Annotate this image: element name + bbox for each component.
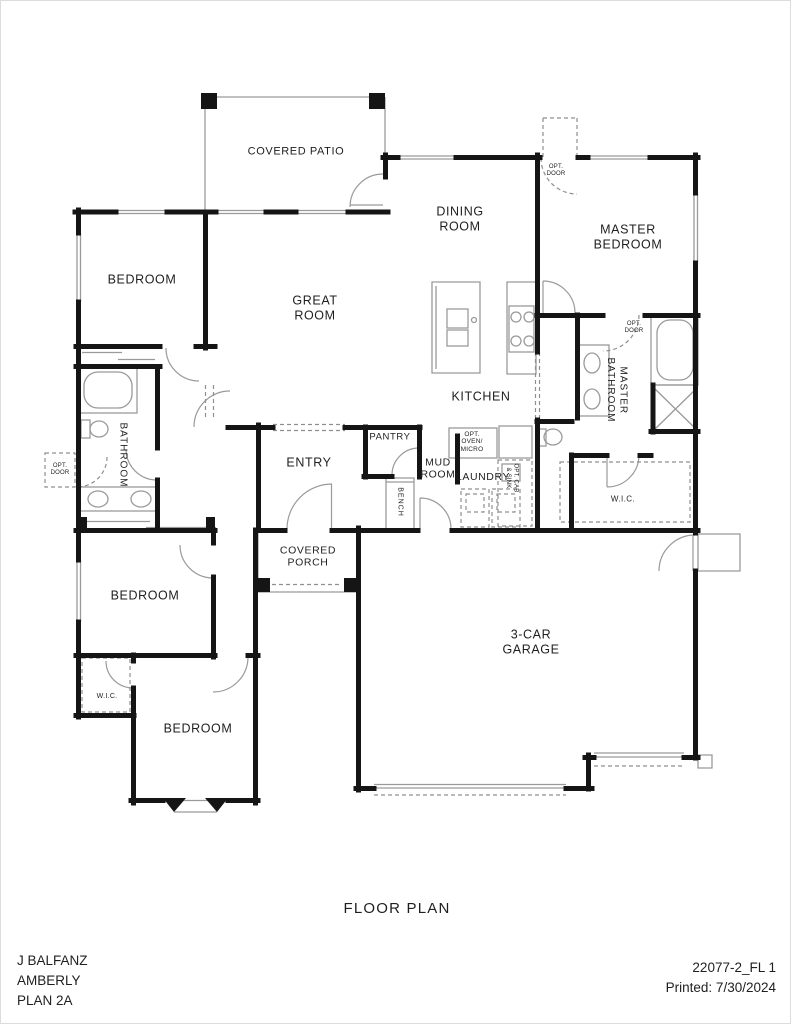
opt-door-bathroom-arc	[77, 457, 107, 487]
patio-door-arc	[350, 174, 383, 207]
patio-post-right	[369, 93, 385, 109]
closet-cap-right	[206, 517, 215, 530]
annotation-opt-door-bathroom: OPT. DOOR	[51, 463, 70, 477]
master-sink-1	[584, 353, 600, 373]
bath-toilet-tank	[81, 420, 90, 438]
titleblock-client: J BALFANZ	[17, 951, 88, 971]
room-label-entry: ENTRY	[286, 456, 331, 471]
bath-sink-1	[88, 491, 108, 507]
room-label-wic-master: W.I.C.	[611, 494, 635, 503]
great-room-hall-door-arc	[194, 391, 230, 427]
bath-vanity	[80, 487, 156, 511]
side-exterior-door-arc	[659, 535, 695, 571]
room-label-mud-room: MUD ROOM	[420, 457, 455, 482]
bedroom-middle-door-arc	[180, 545, 213, 578]
room-label-master-bedroom: MASTER BEDROOM	[594, 222, 663, 252]
master-suite-door-arc	[543, 281, 575, 313]
room-label-bedroom-middle: BEDROOM	[111, 589, 180, 604]
titleblock-plan: PLAN 2A	[17, 991, 73, 1011]
window-lines	[77, 156, 698, 812]
dryer-box	[492, 489, 520, 527]
walls	[75, 155, 698, 803]
titleblock-sheet: 22077-2_FL 1	[692, 958, 776, 978]
annotation-opt-cab-sink: OPT. CAB & SINK	[504, 464, 519, 493]
room-label-bathroom: BATHROOM	[116, 422, 129, 487]
island-sink-basin-1	[447, 309, 468, 328]
annotation-opt-door-master-bath: OPT. DOOR	[625, 321, 644, 335]
room-label-bedroom-top: BEDROOM	[108, 273, 177, 288]
room-label-laundry: LAUNDRY	[456, 471, 510, 483]
drawing-title: FLOOR PLAN	[343, 900, 450, 918]
room-label-great-room: GREAT ROOM	[292, 293, 337, 323]
bath-sink-2	[131, 491, 151, 507]
porch-post-right	[344, 578, 358, 592]
porch-post-left	[256, 578, 270, 592]
bathroom-door-arc	[126, 449, 157, 480]
master-toilet-bowl	[544, 429, 562, 445]
bath-toilet-bowl	[90, 421, 108, 437]
room-label-bench: BENCH	[395, 487, 404, 517]
mudroom-garage-door-arc	[420, 498, 451, 529]
island-sink-basin-2	[447, 330, 468, 346]
wic-bedroom-door-arc	[106, 661, 133, 688]
annotation-opt-oven-micro: OPT. OVEN/ MICRO	[461, 431, 484, 453]
room-label-dining-room: DINING ROOM	[436, 204, 483, 234]
pantry-door-arc	[392, 448, 419, 475]
room-label-wic-bedroom: W.I.C.	[97, 693, 118, 701]
bay-window-wedge-left	[163, 798, 186, 812]
hall-cased-opening	[206, 385, 214, 420]
room-label-kitchen: KITCHEN	[451, 390, 510, 405]
wic-master-shelving	[560, 462, 690, 522]
closet-sliders	[82, 353, 210, 528]
room-label-bedroom-bottom: BEDROOM	[164, 722, 233, 737]
titleblock-printed: Printed: 7/30/2024	[666, 978, 776, 998]
room-label-covered-porch: COVERED PORCH	[280, 545, 336, 570]
opt-cabinet	[499, 426, 532, 458]
bath-tub	[84, 372, 132, 408]
entry-arch-opening	[273, 425, 345, 431]
kitchen-cased-opening	[536, 352, 540, 420]
stoop-outline	[698, 534, 740, 571]
opt-door-vestibule	[543, 118, 577, 157]
bedroom-bottom-door-arc	[213, 657, 248, 692]
titleblock-community: AMBERLY	[17, 971, 81, 991]
master-sink-2	[584, 389, 600, 409]
room-label-pantry: PANTRY	[369, 431, 410, 442]
room-label-master-bathroom: MASTER BATHROOM	[604, 357, 629, 422]
master-tub	[657, 320, 693, 380]
bath-tub-platform	[79, 367, 137, 413]
bedroom-top-door-arc	[166, 348, 199, 381]
bay-window-wedge-right	[205, 798, 228, 812]
patio-post-left	[201, 93, 217, 109]
wic-door-arc	[607, 455, 639, 487]
closet-cap-left	[78, 517, 87, 530]
island-faucet	[472, 318, 477, 323]
floor-plan-page: COVERED PATIO DINING ROOM MASTER BEDROOM…	[0, 0, 791, 1024]
room-label-covered-patio: COVERED PATIO	[248, 146, 345, 159]
front-door-arc	[287, 484, 332, 529]
master-shower	[651, 385, 698, 431]
room-label-garage: 3-CAR GARAGE	[502, 627, 559, 657]
range-counter	[507, 282, 536, 374]
annotation-opt-door-master-entry: OPT. DOOR	[547, 164, 566, 178]
washer-box	[461, 489, 489, 527]
